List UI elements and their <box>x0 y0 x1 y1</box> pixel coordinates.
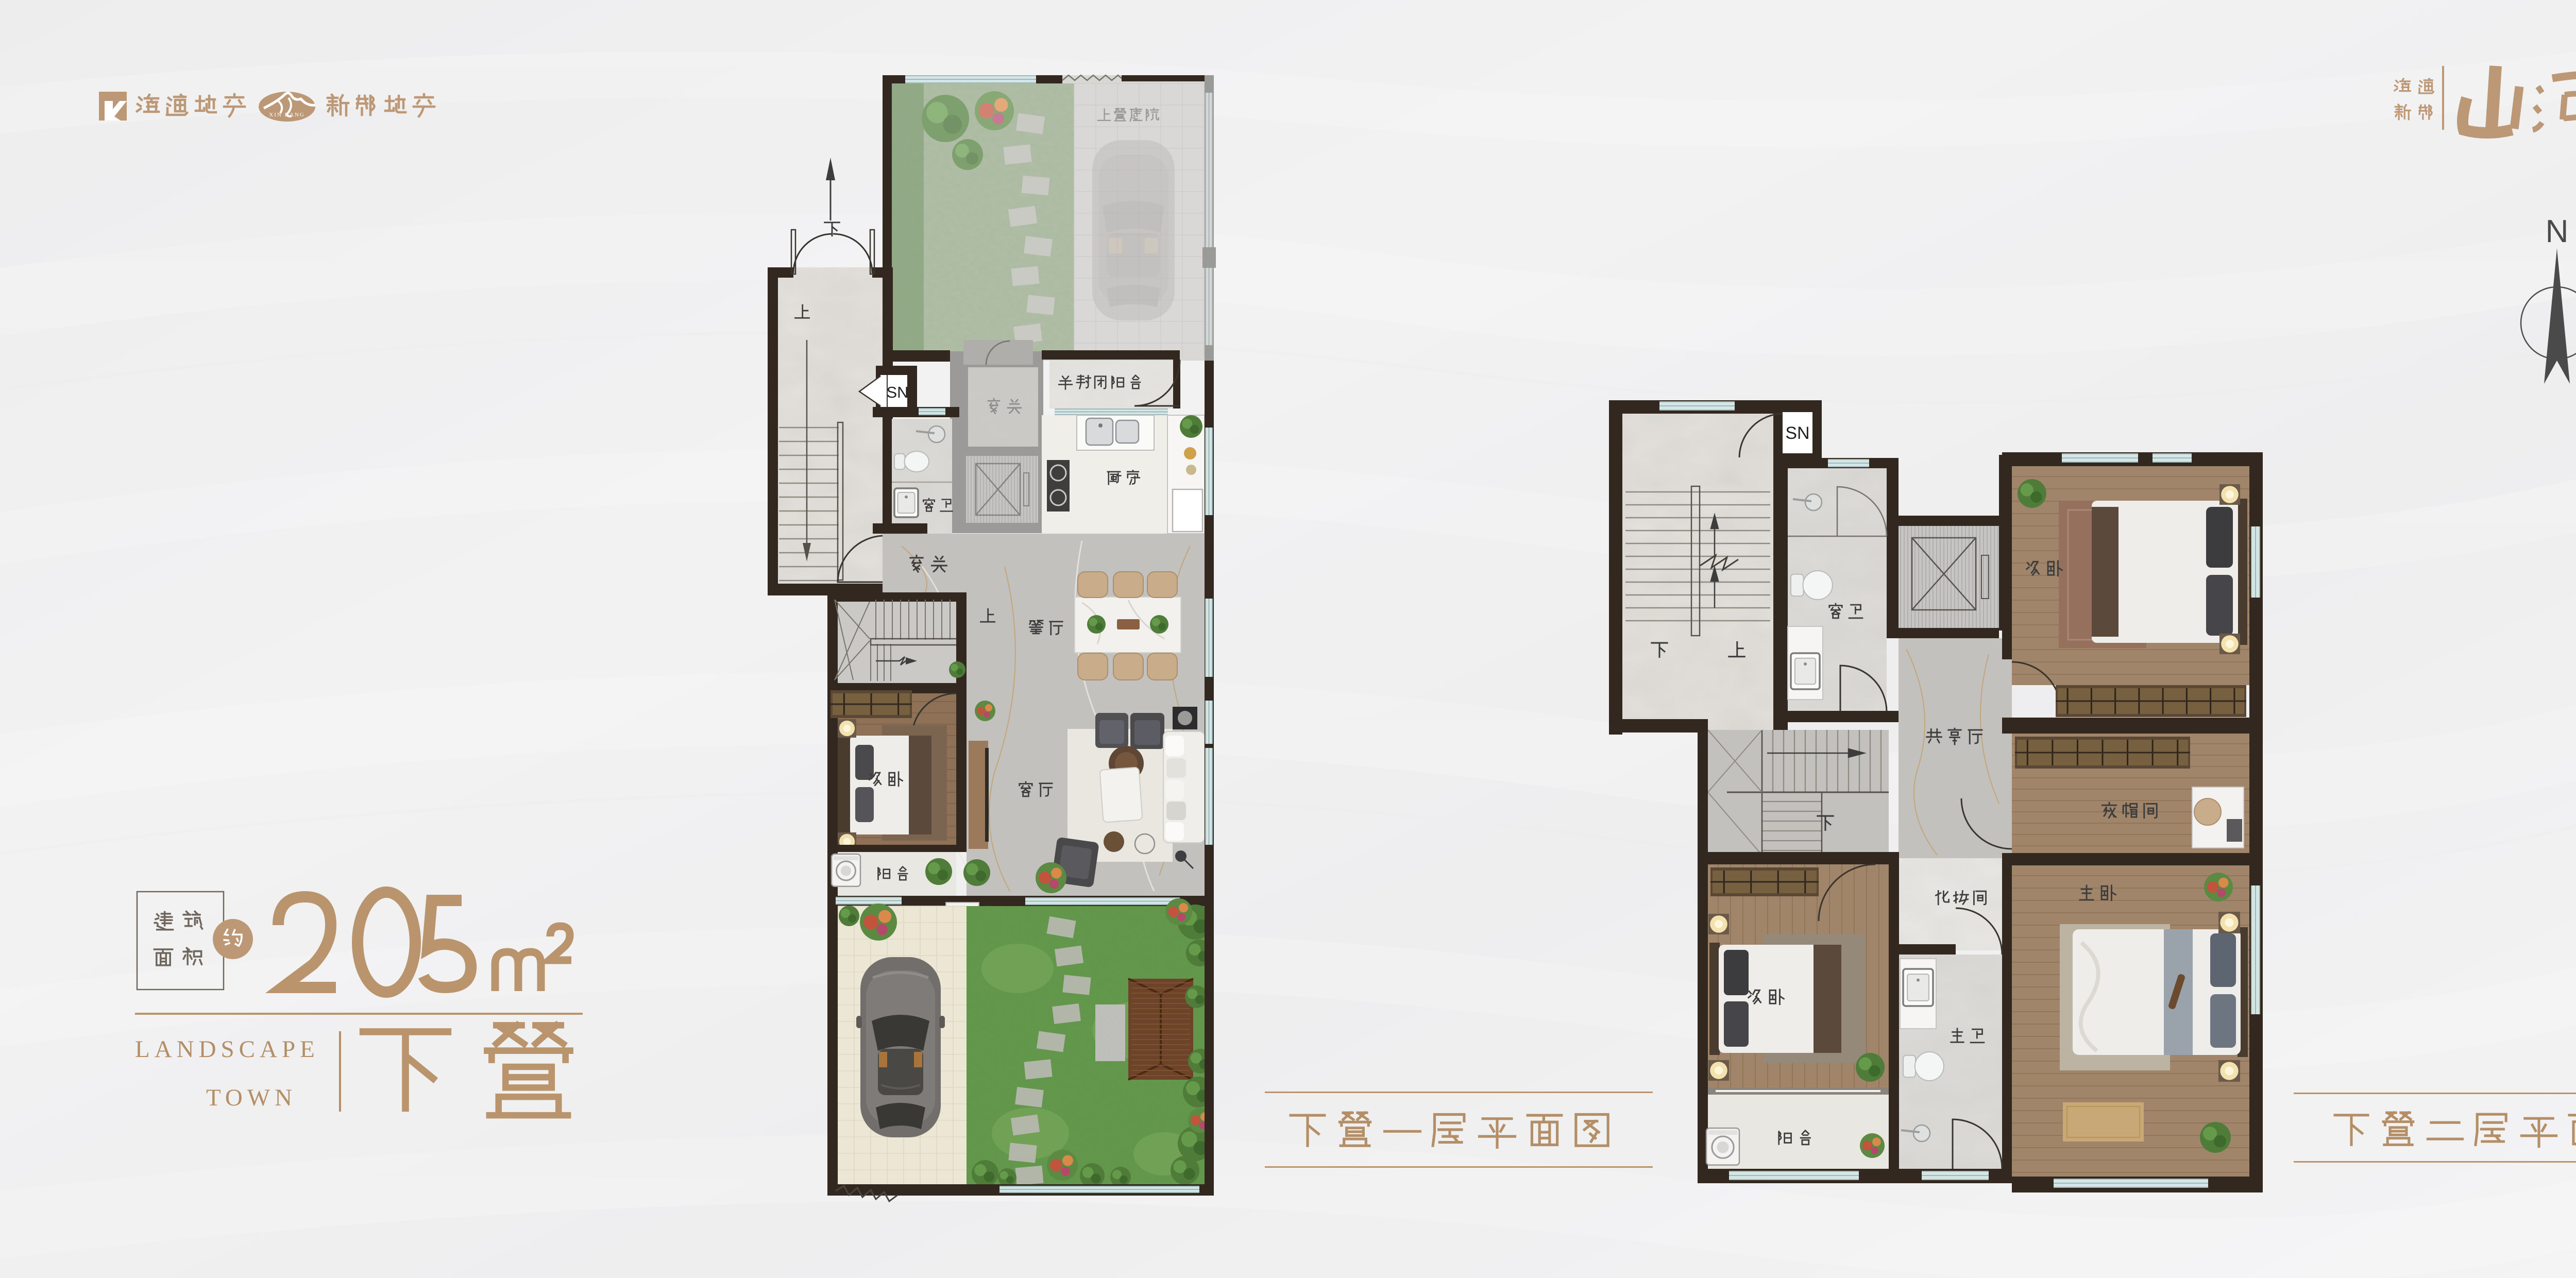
svg-text:LANDSCAPE: LANDSCAPE <box>135 1036 319 1063</box>
svg-text:SN: SN <box>886 383 908 401</box>
svg-text:TOWN: TOWN <box>206 1084 297 1111</box>
svg-text:SN: SN <box>1785 423 1809 443</box>
svg-text:XIN BANG: XIN BANG <box>269 112 304 118</box>
svg-text:N: N <box>2546 214 2569 249</box>
